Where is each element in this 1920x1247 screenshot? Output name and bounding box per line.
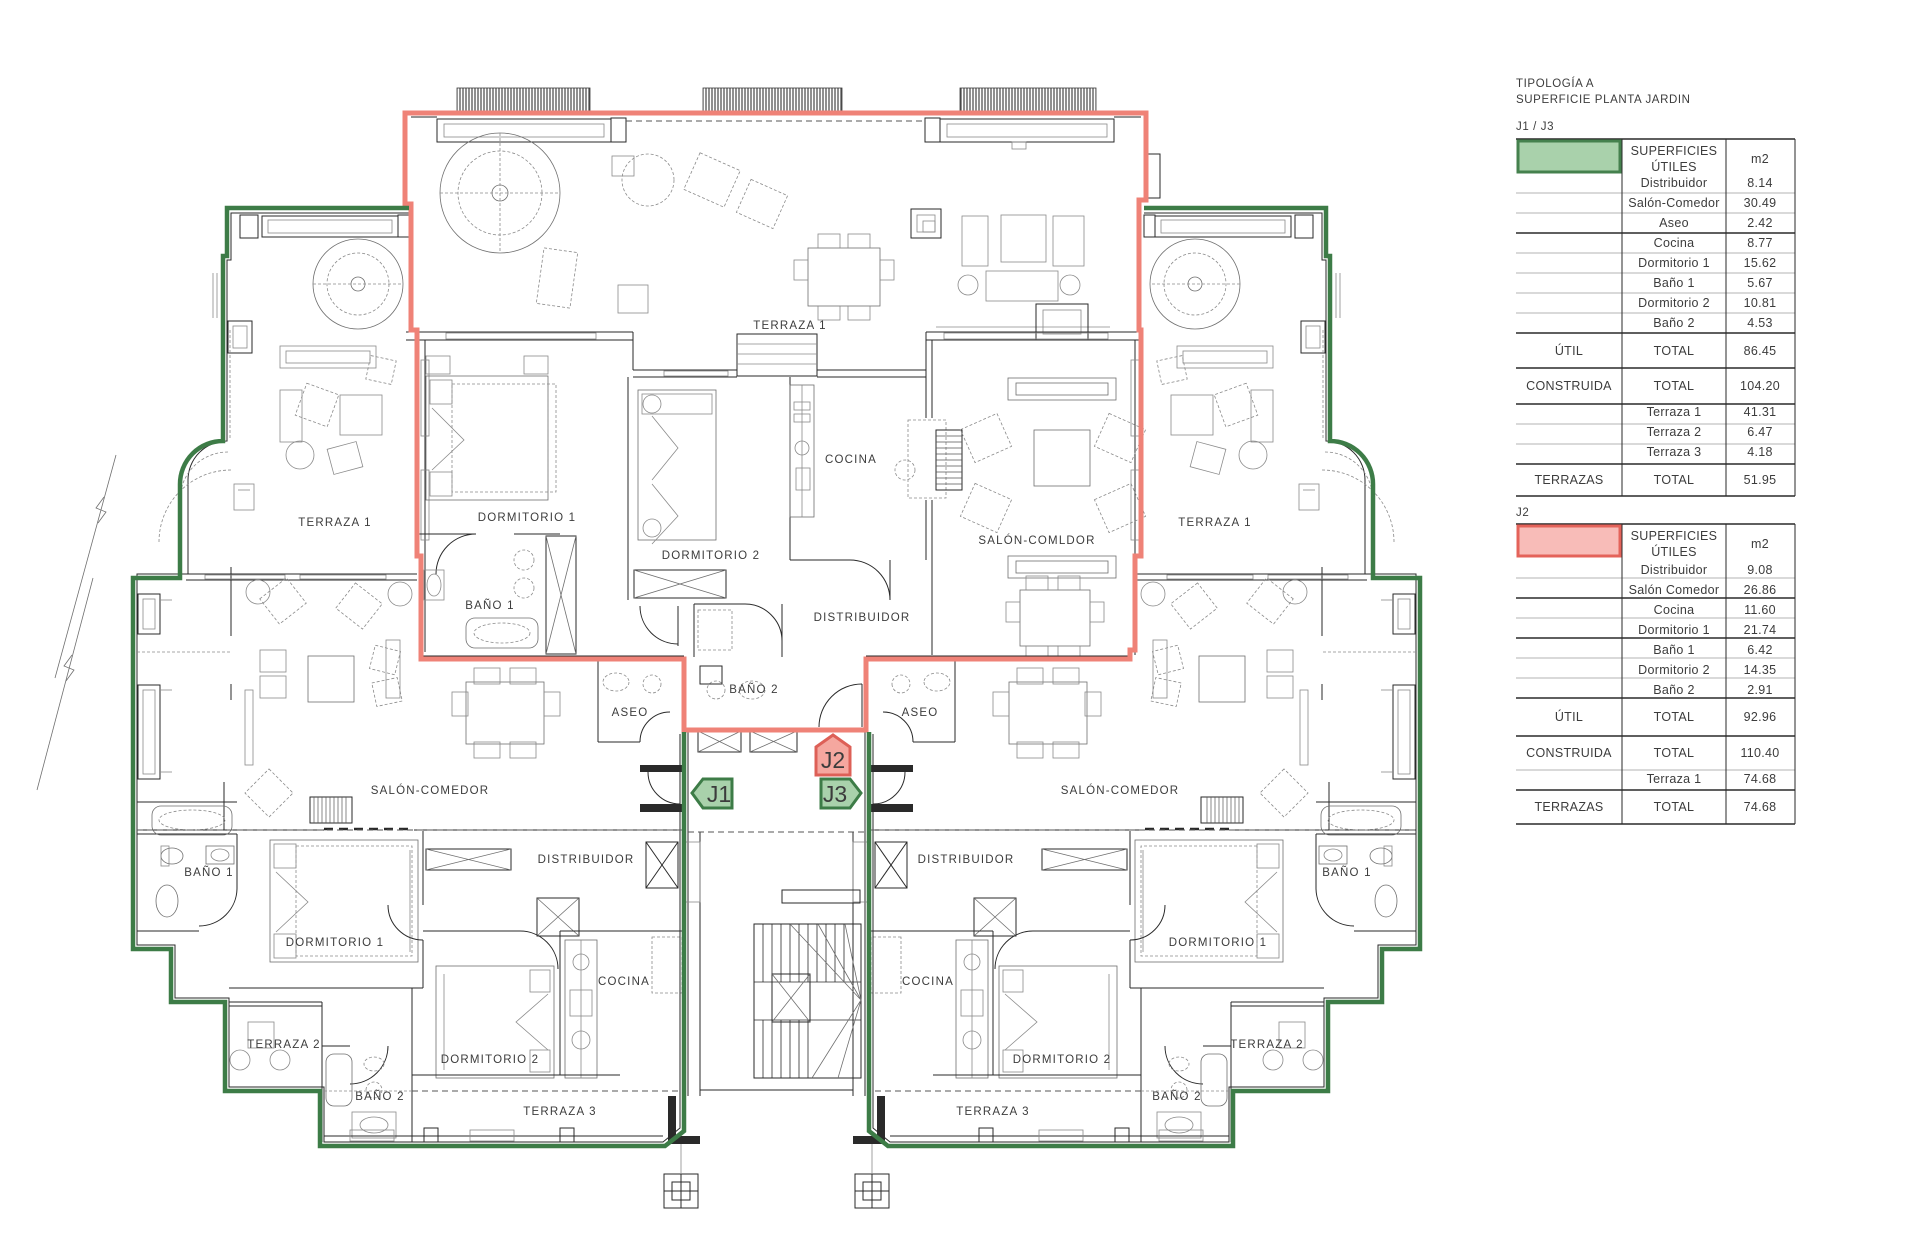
svg-text:110.40: 110.40	[1740, 746, 1779, 760]
svg-text:8.77: 8.77	[1747, 236, 1773, 250]
svg-text:ASEO: ASEO	[902, 707, 939, 719]
svg-text:Aseo: Aseo	[1659, 216, 1689, 230]
svg-text:Terraza 2: Terraza 2	[1647, 425, 1702, 439]
svg-text:74.68: 74.68	[1744, 800, 1777, 814]
svg-text:Cocina: Cocina	[1654, 603, 1695, 617]
svg-text:21.74: 21.74	[1744, 623, 1777, 637]
svg-text:BAÑO 1: BAÑO 1	[184, 866, 233, 879]
svg-text:TERRAZA 3: TERRAZA 3	[956, 1106, 1029, 1118]
svg-text:ÚTILES: ÚTILES	[1651, 544, 1697, 559]
svg-text:J3: J3	[823, 781, 847, 807]
svg-text:11.60: 11.60	[1744, 603, 1776, 617]
svg-text:J1: J1	[707, 781, 731, 807]
svg-text:15.62: 15.62	[1744, 256, 1777, 270]
svg-text:TERRAZAS: TERRAZAS	[1534, 800, 1603, 814]
svg-text:DORMITORIO 1: DORMITORIO 1	[286, 937, 385, 949]
svg-text:Baño 2: Baño 2	[1653, 316, 1694, 330]
svg-text:TERRAZA 3: TERRAZA 3	[523, 1106, 596, 1118]
svg-text:41.31: 41.31	[1744, 405, 1777, 419]
svg-text:CONSTRUIDA: CONSTRUIDA	[1526, 379, 1612, 393]
svg-text:m2: m2	[1751, 152, 1769, 166]
svg-text:DORMITORIO 2: DORMITORIO 2	[1013, 1054, 1112, 1066]
svg-text:DISTRIBUIDOR: DISTRIBUIDOR	[538, 854, 635, 866]
svg-text:14.35: 14.35	[1744, 663, 1777, 677]
svg-text:CONSTRUIDA: CONSTRUIDA	[1526, 746, 1612, 760]
svg-text:TOTAL: TOTAL	[1654, 473, 1695, 487]
svg-text:Terraza 1: Terraza 1	[1647, 772, 1702, 786]
svg-text:2.42: 2.42	[1747, 216, 1773, 230]
svg-text:ÚTILES: ÚTILES	[1651, 159, 1697, 174]
svg-text:Terraza 1: Terraza 1	[1647, 405, 1702, 419]
svg-text:DORMITORIO 1: DORMITORIO 1	[478, 512, 577, 524]
svg-text:10.81: 10.81	[1744, 296, 1777, 310]
svg-text:TOTAL: TOTAL	[1654, 746, 1695, 760]
svg-text:J2: J2	[821, 747, 845, 773]
svg-text:TERRAZA 1: TERRAZA 1	[1178, 517, 1251, 529]
svg-text:2.91: 2.91	[1747, 683, 1773, 697]
svg-text:Dormitorio 1: Dormitorio 1	[1638, 256, 1710, 270]
svg-text:Distribuidor: Distribuidor	[1641, 563, 1708, 577]
svg-text:ASEO: ASEO	[612, 707, 649, 719]
svg-text:Baño 1: Baño 1	[1653, 276, 1694, 290]
svg-text:Cocina: Cocina	[1654, 236, 1695, 250]
svg-text:TERRAZA 1: TERRAZA 1	[298, 517, 371, 529]
svg-text:92.96: 92.96	[1744, 710, 1777, 724]
svg-text:DISTRIBUIDOR: DISTRIBUIDOR	[814, 612, 911, 624]
svg-text:TERRAZAS: TERRAZAS	[1534, 473, 1603, 487]
svg-text:DORMITORIO 2: DORMITORIO 2	[441, 1054, 540, 1066]
svg-text:26.86: 26.86	[1744, 583, 1777, 597]
svg-text:SUPERFICIES: SUPERFICIES	[1631, 529, 1718, 543]
svg-text:9.08: 9.08	[1747, 563, 1773, 577]
svg-text:TERRAZA 1: TERRAZA 1	[753, 320, 826, 332]
svg-text:8.14: 8.14	[1747, 176, 1773, 190]
svg-text:DORMITORIO 2: DORMITORIO 2	[662, 550, 761, 562]
svg-text:DISTRIBUIDOR: DISTRIBUIDOR	[918, 854, 1015, 866]
svg-text:DORMITORIO 1: DORMITORIO 1	[1169, 937, 1268, 949]
svg-text:SALÓN-COMEDOR: SALÓN-COMEDOR	[1061, 784, 1179, 797]
svg-text:SALÓN-COMLDOR: SALÓN-COMLDOR	[978, 534, 1095, 547]
svg-text:TOTAL: TOTAL	[1654, 344, 1695, 358]
svg-text:m2: m2	[1751, 537, 1769, 551]
svg-text:COCINA: COCINA	[598, 976, 650, 988]
svg-text:TOTAL: TOTAL	[1654, 710, 1695, 724]
svg-text:Dormitorio 2: Dormitorio 2	[1638, 296, 1710, 310]
svg-text:COCINA: COCINA	[902, 976, 954, 988]
svg-text:6.42: 6.42	[1747, 643, 1773, 657]
svg-text:SALÓN-COMEDOR: SALÓN-COMEDOR	[371, 784, 489, 797]
svg-text:Salón-Comedor: Salón-Comedor	[1628, 196, 1719, 210]
svg-text:51.95: 51.95	[1744, 473, 1777, 487]
svg-text:J1 / J3: J1 / J3	[1516, 121, 1554, 133]
svg-text:SUPERFICIE PLANTA JARDIN: SUPERFICIE PLANTA JARDIN	[1516, 94, 1691, 106]
svg-text:BAÑO 2: BAÑO 2	[729, 683, 778, 696]
svg-text:Dormitorio 1: Dormitorio 1	[1638, 623, 1710, 637]
svg-text:4.53: 4.53	[1747, 316, 1773, 330]
svg-text:TOTAL: TOTAL	[1654, 800, 1695, 814]
svg-text:TIPOLOGÍA A: TIPOLOGÍA A	[1516, 77, 1594, 90]
svg-text:Salón Comedor: Salón Comedor	[1629, 583, 1720, 597]
svg-text:Dormitorio 2: Dormitorio 2	[1638, 663, 1710, 677]
svg-text:6.47: 6.47	[1747, 425, 1773, 439]
svg-text:ÚTIL: ÚTIL	[1555, 709, 1583, 724]
svg-text:BAÑO 1: BAÑO 1	[465, 599, 514, 612]
svg-text:J2: J2	[1516, 507, 1529, 519]
svg-text:BAÑO 2: BAÑO 2	[1152, 1090, 1201, 1103]
svg-text:COCINA: COCINA	[825, 454, 877, 466]
svg-text:5.67: 5.67	[1747, 276, 1773, 290]
svg-text:TERRAZA 2: TERRAZA 2	[1230, 1039, 1303, 1051]
svg-text:74.68: 74.68	[1744, 772, 1777, 786]
svg-text:Terraza 3: Terraza 3	[1647, 445, 1702, 459]
svg-text:Distribuidor: Distribuidor	[1641, 176, 1708, 190]
svg-text:TERRAZA 2: TERRAZA 2	[247, 1039, 320, 1051]
svg-text:4.18: 4.18	[1747, 445, 1773, 459]
svg-text:86.45: 86.45	[1744, 344, 1777, 358]
svg-text:SUPERFICIES: SUPERFICIES	[1631, 144, 1718, 158]
svg-text:30.49: 30.49	[1744, 196, 1777, 210]
svg-text:ÚTIL: ÚTIL	[1555, 343, 1583, 358]
svg-text:104.20: 104.20	[1740, 379, 1780, 393]
svg-text:BAÑO 2: BAÑO 2	[355, 1090, 404, 1103]
svg-text:Baño 2: Baño 2	[1653, 683, 1694, 697]
svg-text:Baño 1: Baño 1	[1653, 643, 1694, 657]
svg-text:TOTAL: TOTAL	[1654, 379, 1695, 393]
svg-text:BAÑO 1: BAÑO 1	[1322, 866, 1371, 879]
